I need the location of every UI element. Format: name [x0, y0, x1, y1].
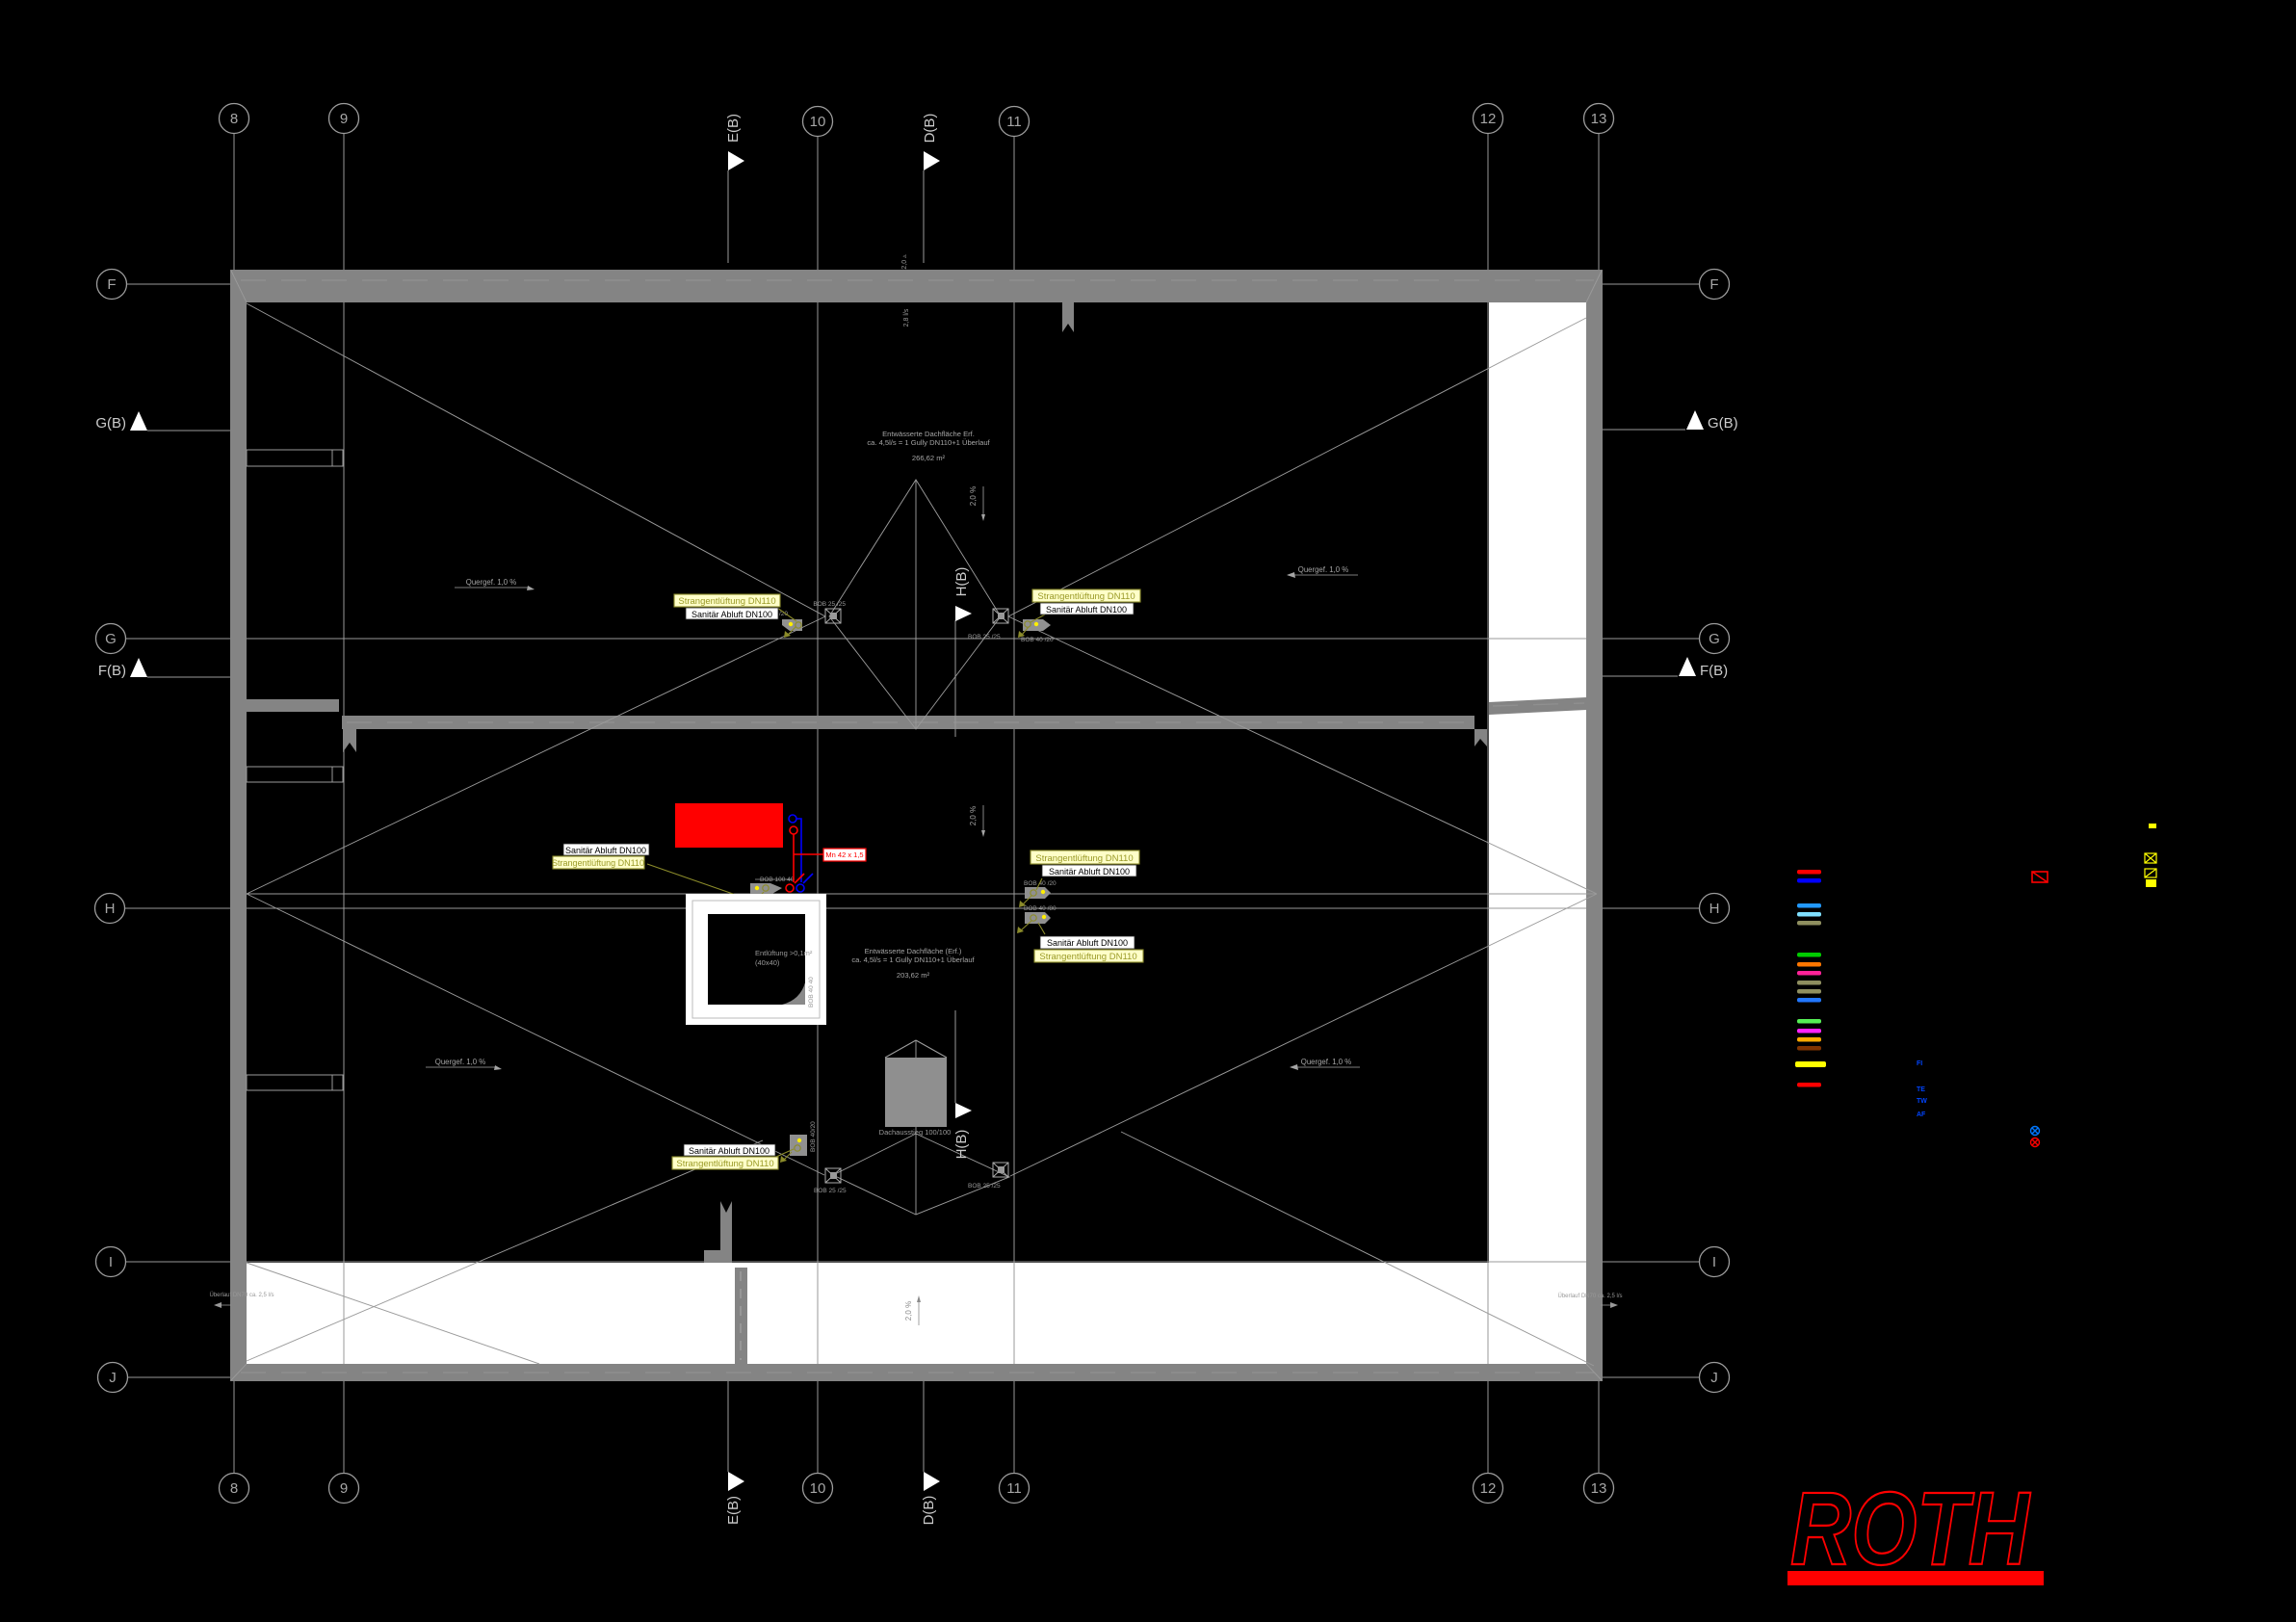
svg-text:Strangentlüftung DN110: Strangentlüftung DN110: [1035, 853, 1133, 864]
svg-text:Sanitär Abluft DN100: Sanitär Abluft DN100: [1047, 938, 1128, 948]
svg-text:11: 11: [1006, 114, 1022, 130]
svg-text:E(B): E(B): [725, 1496, 742, 1525]
svg-text:2,0 ▵: 2,0 ▵: [901, 254, 908, 270]
svg-text:BOB 40 40: BOB 40 40: [808, 977, 815, 1007]
svg-text:TW: TW: [1917, 1098, 1927, 1105]
svg-text:(40x40): (40x40): [755, 958, 780, 967]
svg-text:Dachausstieg 100/100: Dachausstieg 100/100: [879, 1128, 952, 1137]
svg-text:D(B): D(B): [921, 1496, 937, 1526]
svg-text:2,0 %: 2,0 %: [969, 806, 978, 825]
svg-text:203,62 m²: 203,62 m²: [897, 971, 930, 980]
svg-text:Entlüftung >0,1m²: Entlüftung >0,1m²: [755, 949, 813, 957]
svg-text:G(B): G(B): [1708, 415, 1738, 432]
svg-text:11: 11: [1006, 1480, 1022, 1497]
svg-text:2,0 %: 2,0 %: [904, 1301, 913, 1321]
svg-text:H(B): H(B): [953, 1130, 970, 1160]
svg-text:8: 8: [230, 111, 238, 127]
svg-text:Sanitär Abluft DN100: Sanitär Abluft DN100: [1049, 867, 1130, 876]
svg-text:F: F: [107, 276, 116, 293]
svg-text:Sanitär Abluft DN100: Sanitär Abluft DN100: [691, 610, 772, 619]
svg-text:Entwässerte Dachfläche (Erf.): Entwässerte Dachfläche (Erf.): [865, 947, 962, 955]
svg-text:BOB 40/20: BOB 40/20: [810, 1121, 817, 1152]
svg-text:Sanitär Abluft DN100: Sanitär Abluft DN100: [565, 846, 646, 855]
svg-text:J: J: [109, 1370, 117, 1386]
svg-text:AF: AF: [1917, 1112, 1926, 1118]
svg-text:BOB 40 /20: BOB 40 /20: [1021, 637, 1054, 643]
svg-text:G: G: [1709, 631, 1720, 647]
svg-text:10: 10: [810, 1480, 826, 1497]
svg-text:Strangentlüftung DN110: Strangentlüftung DN110: [552, 858, 644, 868]
svg-text:ca. 4,5l/s = 1 Gully DN110+1 Ü: ca. 4,5l/s = 1 Gully DN110+1 Überlauf: [851, 955, 975, 964]
svg-text:Quergef. 1,0 %: Quergef. 1,0 %: [435, 1058, 486, 1066]
svg-text:FI: FI: [1917, 1060, 1922, 1067]
svg-text:F: F: [1709, 276, 1718, 293]
svg-text:13: 13: [1591, 1480, 1607, 1497]
svg-text:12: 12: [1480, 111, 1497, 127]
svg-text:Entwässerte Dachfläche Erf.: Entwässerte Dachfläche Erf.: [882, 430, 975, 438]
svg-text:F(B): F(B): [1700, 663, 1728, 679]
svg-text:12: 12: [1480, 1480, 1497, 1497]
svg-text:266,62 m²: 266,62 m²: [912, 454, 946, 462]
svg-text:J: J: [1710, 1370, 1718, 1386]
svg-text:Sanitär Abluft DN100: Sanitär Abluft DN100: [1046, 605, 1127, 615]
svg-text:E(B): E(B): [725, 114, 742, 143]
svg-text:2,8 l/s: 2,8 l/s: [903, 308, 910, 327]
svg-text:BOB 40 /80: BOB 40 /80: [1024, 905, 1057, 912]
svg-text:Mn 42 x 1,5: Mn 42 x 1,5: [825, 850, 863, 859]
svg-text:10: 10: [810, 114, 826, 130]
svg-text:G(B): G(B): [95, 415, 126, 432]
svg-text:BOB 25 /25: BOB 25 /25: [814, 1188, 847, 1194]
svg-text:ca. 4,5l/s = 1 Gully DN110+1 Ü: ca. 4,5l/s = 1 Gully DN110+1 Überlauf: [867, 438, 990, 447]
svg-text:I: I: [1712, 1254, 1716, 1270]
svg-text:Strangentlüftung DN110: Strangentlüftung DN110: [1039, 952, 1136, 962]
svg-text:Überlauf DN70 ca. 2,5 l/s: Überlauf DN70 ca. 2,5 l/s: [209, 1292, 274, 1298]
svg-text:8: 8: [230, 1480, 238, 1497]
svg-text:G: G: [105, 631, 117, 647]
svg-text:Strangentlüftung DN110: Strangentlüftung DN110: [678, 596, 775, 607]
svg-text:BOB 25 /25: BOB 25 /25: [968, 1183, 1001, 1190]
svg-text:BOB 25 /25: BOB 25 /25: [813, 601, 846, 608]
svg-text:Sanitär Abluft DN100: Sanitär Abluft DN100: [689, 1146, 770, 1156]
svg-text:BOB 25 /25: BOB 25 /25: [968, 634, 1001, 641]
svg-text:Überlauf DN70 ca. 2,5 l/s: Überlauf DN70 ca. 2,5 l/s: [1557, 1293, 1622, 1299]
svg-text:9: 9: [340, 111, 348, 127]
svg-text:H(B): H(B): [953, 567, 970, 597]
svg-text:H: H: [105, 901, 116, 917]
svg-text:ROTH: ROTH: [1790, 1470, 2031, 1586]
svg-text:Quergef. 1,0 %: Quergef. 1,0 %: [1298, 565, 1349, 574]
svg-text:TE: TE: [1917, 1086, 1925, 1093]
svg-text:H: H: [1709, 901, 1720, 917]
svg-text:Quergef. 1,0 %: Quergef. 1,0 %: [466, 578, 517, 587]
svg-text:BOB 100 40: BOB 100 40: [760, 876, 795, 883]
svg-text:D(B): D(B): [922, 114, 938, 144]
svg-text:9: 9: [340, 1480, 348, 1497]
svg-text:I: I: [109, 1254, 113, 1270]
svg-text:F(B): F(B): [98, 663, 126, 679]
svg-text:13: 13: [1591, 111, 1607, 127]
svg-text:Strangentlüftung DN110: Strangentlüftung DN110: [1037, 591, 1135, 602]
svg-text:Strangentlüftung DN110: Strangentlüftung DN110: [676, 1159, 773, 1169]
svg-text:2,0 %: 2,0 %: [969, 486, 978, 506]
svg-text:Quergef. 1,0 %: Quergef. 1,0 %: [1301, 1058, 1352, 1066]
